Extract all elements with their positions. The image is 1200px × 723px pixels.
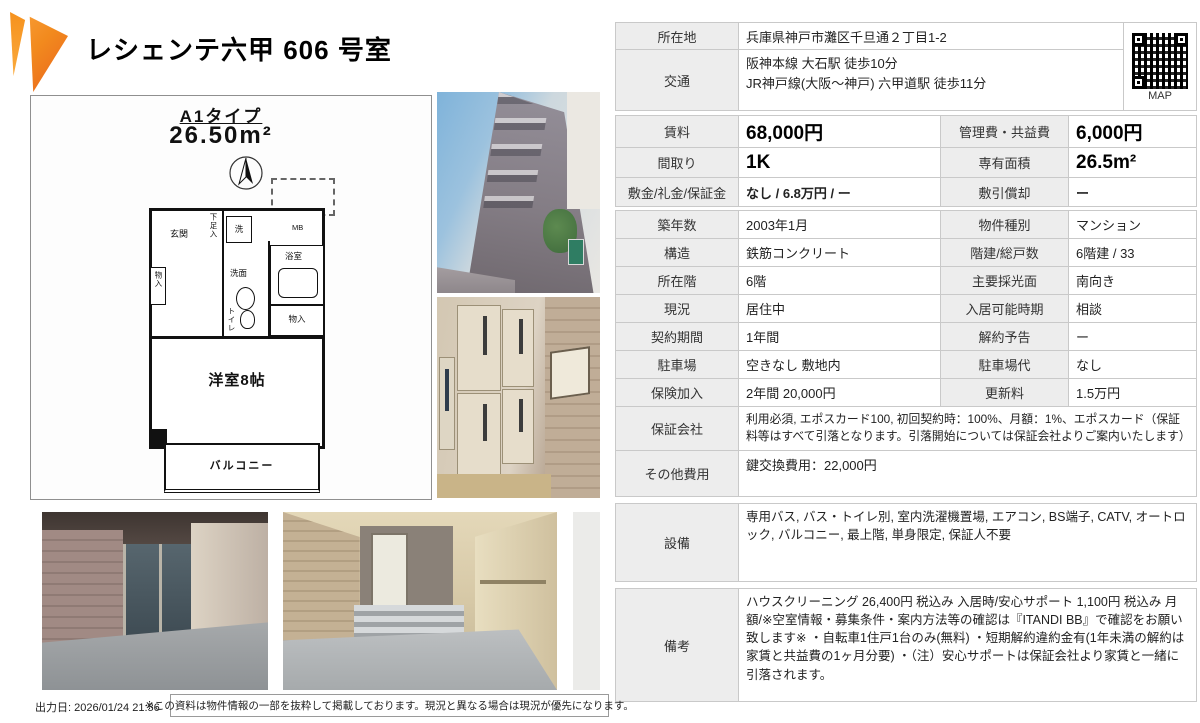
room-shoebox-label: 下足入 xyxy=(208,213,219,239)
row-parkingfee-label: 駐車場代 xyxy=(941,351,1069,379)
room-storage-left-label: 物入 xyxy=(153,271,164,288)
map-qr-cell[interactable]: MAP xyxy=(1124,23,1197,111)
row-otherfees-value: 鍵交換費用：22,000円 xyxy=(739,451,1197,497)
qr-finder xyxy=(1132,33,1145,46)
row-rent-label: 賃料 xyxy=(616,116,739,148)
hallway-photo xyxy=(283,512,557,690)
map-qr-code-icon[interactable] xyxy=(1132,33,1188,89)
floorplan-balcony: バルコニー xyxy=(164,443,320,493)
qr-finder xyxy=(1132,76,1145,89)
locker-slot xyxy=(519,399,523,432)
output-date: 出力日: 2026/01/24 21:56 xyxy=(35,699,160,715)
brick-wall-shape xyxy=(42,530,123,647)
row-guarantor-label: 保証会社 xyxy=(616,407,739,451)
property-sheet: レシェンテ六甲 606 号室 A1タイプ 26.50m² 玄関 下足入 物入 洗… xyxy=(0,0,1200,723)
qr-finder xyxy=(1175,33,1188,46)
disclaimer-note: ※この資料は物件情報の一部を抜粋して掲載しております。現況と異なる場合は現況が優… xyxy=(170,694,609,717)
row-status-value: 居住中 xyxy=(739,295,941,323)
row-movein-label: 入居可能時期 xyxy=(941,295,1069,323)
table-location-access: 所在地 兵庫県神戸市灘区千旦通２丁目1-2 MAP 交通 阪神本線 大石駅 徒歩… xyxy=(615,22,1197,111)
access-line-1: 阪神本線 大石駅 徒歩10分 xyxy=(746,54,1116,74)
row-equipment-label: 設備 xyxy=(616,504,739,582)
row-built-label: 築年数 xyxy=(616,211,739,239)
floorplan-wall xyxy=(222,211,224,336)
table-remarks: 備考 ハウスクリーニング 26,400円 税込み 入居時/安心サポート 1,10… xyxy=(615,588,1197,702)
room-washer-label: 洗 xyxy=(227,217,251,241)
row-remarks-value: ハウスクリーニング 26,400円 税込み 入居時/安心サポート 1,100円 … xyxy=(739,589,1197,702)
entrance-photo xyxy=(42,512,268,690)
row-otherfees-label: その他費用 xyxy=(616,451,739,497)
room-storage-left-box: 物入 xyxy=(150,267,166,305)
row-location-value: 兵庫県神戸市灘区千旦通２丁目1-2 xyxy=(739,23,1124,50)
floorplan-area-label: 26.50m² xyxy=(141,122,301,150)
row-area-value: 26.5m² xyxy=(1069,148,1197,178)
locker-slot xyxy=(483,316,487,355)
row-category-value: マンション xyxy=(1069,211,1197,239)
row-parkingfee-value: なし xyxy=(1069,351,1197,379)
row-floors-label: 階建/総戸数 xyxy=(941,239,1069,267)
green-sign-shape xyxy=(568,239,584,265)
row-guarantor-value: 利用必須, エポスカード100, 初回契約時：100%、月額：1%、エポスカード… xyxy=(739,407,1197,451)
row-facing-label: 主要採光面 xyxy=(941,267,1069,295)
locker-door xyxy=(457,305,501,391)
row-area-label: 専有面積 xyxy=(941,148,1069,178)
toilet-shape xyxy=(240,310,255,329)
room-washer-box: 洗 xyxy=(226,216,252,243)
row-structure-label: 構造 xyxy=(616,239,739,267)
row-amortization-label: 敷引償却 xyxy=(941,178,1069,207)
notice-board-shape xyxy=(550,346,590,400)
room-toilet-label: トイレ xyxy=(226,307,237,333)
table-details: 築年数 2003年1月 物件種別 マンション 構造 鉄筋コンクリート 階建/総戸… xyxy=(615,210,1197,497)
row-built-value: 2003年1月 xyxy=(739,211,941,239)
row-term-label: 契約期間 xyxy=(616,323,739,351)
compass-icon xyxy=(227,154,265,192)
row-mgmtfee-label: 管理費・共益費 xyxy=(941,116,1069,148)
brick-wall-shape xyxy=(283,512,360,651)
row-mgmtfee-value: 6,000円 xyxy=(1069,116,1197,148)
row-layout-label: 間取り xyxy=(616,148,739,178)
row-renewal-label: 更新料 xyxy=(941,379,1069,407)
room-entrance-label: 玄関 xyxy=(170,227,188,240)
row-renewal-value: 1.5万円 xyxy=(1069,379,1197,407)
tile-floor-shape xyxy=(283,629,557,690)
table-rent: 賃料 68,000円 管理費・共益費 6,000円 間取り 1K 専有面積 26… xyxy=(615,115,1197,207)
room-balcony-label: バルコニー xyxy=(166,457,318,473)
floorplan-wall xyxy=(152,336,322,339)
locker-slot xyxy=(483,404,487,441)
row-floor-value: 6階 xyxy=(739,267,941,295)
agency-logo-icon xyxy=(10,12,68,92)
row-floor-label: 所在階 xyxy=(616,267,739,295)
mailbox-slot xyxy=(445,369,449,411)
row-notice-label: 解約予告 xyxy=(941,323,1069,351)
photo-strip-partial xyxy=(573,512,600,690)
row-remarks-label: 備考 xyxy=(616,589,739,702)
row-category-label: 物件種別 xyxy=(941,211,1069,239)
row-floors-value: 6階建 / 33 xyxy=(1069,239,1197,267)
row-deposit-value: なし / 6.8万円 / ー xyxy=(739,178,941,207)
locker-slot xyxy=(519,319,523,354)
row-facing-value: 南向き xyxy=(1069,267,1197,295)
room-meterbox-label: MB xyxy=(292,223,303,232)
map-label: MAP xyxy=(1126,90,1194,102)
row-notice-value: ー xyxy=(1069,323,1197,351)
building-exterior-photo xyxy=(437,92,600,293)
room-storage-right-label: 物入 xyxy=(271,306,323,333)
elevator-door-shape xyxy=(371,533,408,615)
glass-doors-shape xyxy=(123,544,197,644)
row-amortization-value: ー xyxy=(1069,178,1197,207)
row-status-label: 現況 xyxy=(616,295,739,323)
property-info-table: 所在地 兵庫県神戸市灘区千旦通２丁目1-2 MAP 交通 阪神本線 大石駅 徒歩… xyxy=(615,22,1196,702)
row-deposit-label: 敷金/礼金/保証金 xyxy=(616,178,739,207)
room-main-label: 洋室8帖 xyxy=(152,369,322,390)
room-storage-right-box: 物入 xyxy=(270,305,324,336)
page-title: レシェンテ六甲 606 号室 xyxy=(86,30,392,67)
row-layout-value: 1K xyxy=(739,148,941,178)
locker-floor-shape xyxy=(437,474,551,498)
row-insurance-label: 保険加入 xyxy=(616,379,739,407)
room-bathroom-label: 浴室 xyxy=(285,250,302,262)
delivery-lockers-photo xyxy=(437,297,600,498)
row-insurance-value: 2年間 20,000円 xyxy=(739,379,941,407)
steps-shape xyxy=(354,605,464,637)
floorplan-unit: 玄関 下足入 物入 洗 MB 洗面 浴室 トイレ 物入 洋室8帖 xyxy=(149,208,325,449)
row-parking-label: 駐車場 xyxy=(616,351,739,379)
locker-door xyxy=(502,309,533,387)
row-parking-value: 空きなし 敷地内 xyxy=(739,351,941,379)
row-movein-value: 相談 xyxy=(1069,295,1197,323)
row-equipment-value: 専用バス, バス・トイレ別, 室内洗濯機置場, エアコン, BS端子, CATV… xyxy=(739,504,1197,582)
room-washroom-label: 洗面 xyxy=(230,267,247,279)
locker-door xyxy=(457,393,501,475)
row-term-value: 1年間 xyxy=(739,323,941,351)
row-rent-value: 68,000円 xyxy=(739,116,941,148)
mailbox-column xyxy=(439,357,456,449)
sink-shape xyxy=(236,287,255,310)
row-access-value: 阪神本線 大石駅 徒歩10分 JR神戸線(大阪〜神戸) 六甲道駅 徒歩11分 xyxy=(739,50,1124,111)
table-equipment: 設備 専用バス, バス・トイレ別, 室内洗濯機置場, エアコン, BS端子, C… xyxy=(615,503,1197,582)
row-structure-value: 鉄筋コンクリート xyxy=(739,239,941,267)
floorplan-image: A1タイプ 26.50m² 玄関 下足入 物入 洗 MB 洗面 浴室 xyxy=(30,95,432,500)
locker-door xyxy=(502,389,533,463)
room-bathroom-box: 浴室 xyxy=(270,245,324,305)
neighbor-building-shape xyxy=(567,92,600,209)
shelf-shape xyxy=(480,580,546,584)
row-location-label: 所在地 xyxy=(616,23,739,50)
bathtub-shape xyxy=(278,268,318,298)
row-access-label: 交通 xyxy=(616,50,739,111)
access-line-2: JR神戸線(大阪〜神戸) 六甲道駅 徒歩11分 xyxy=(746,74,1116,94)
